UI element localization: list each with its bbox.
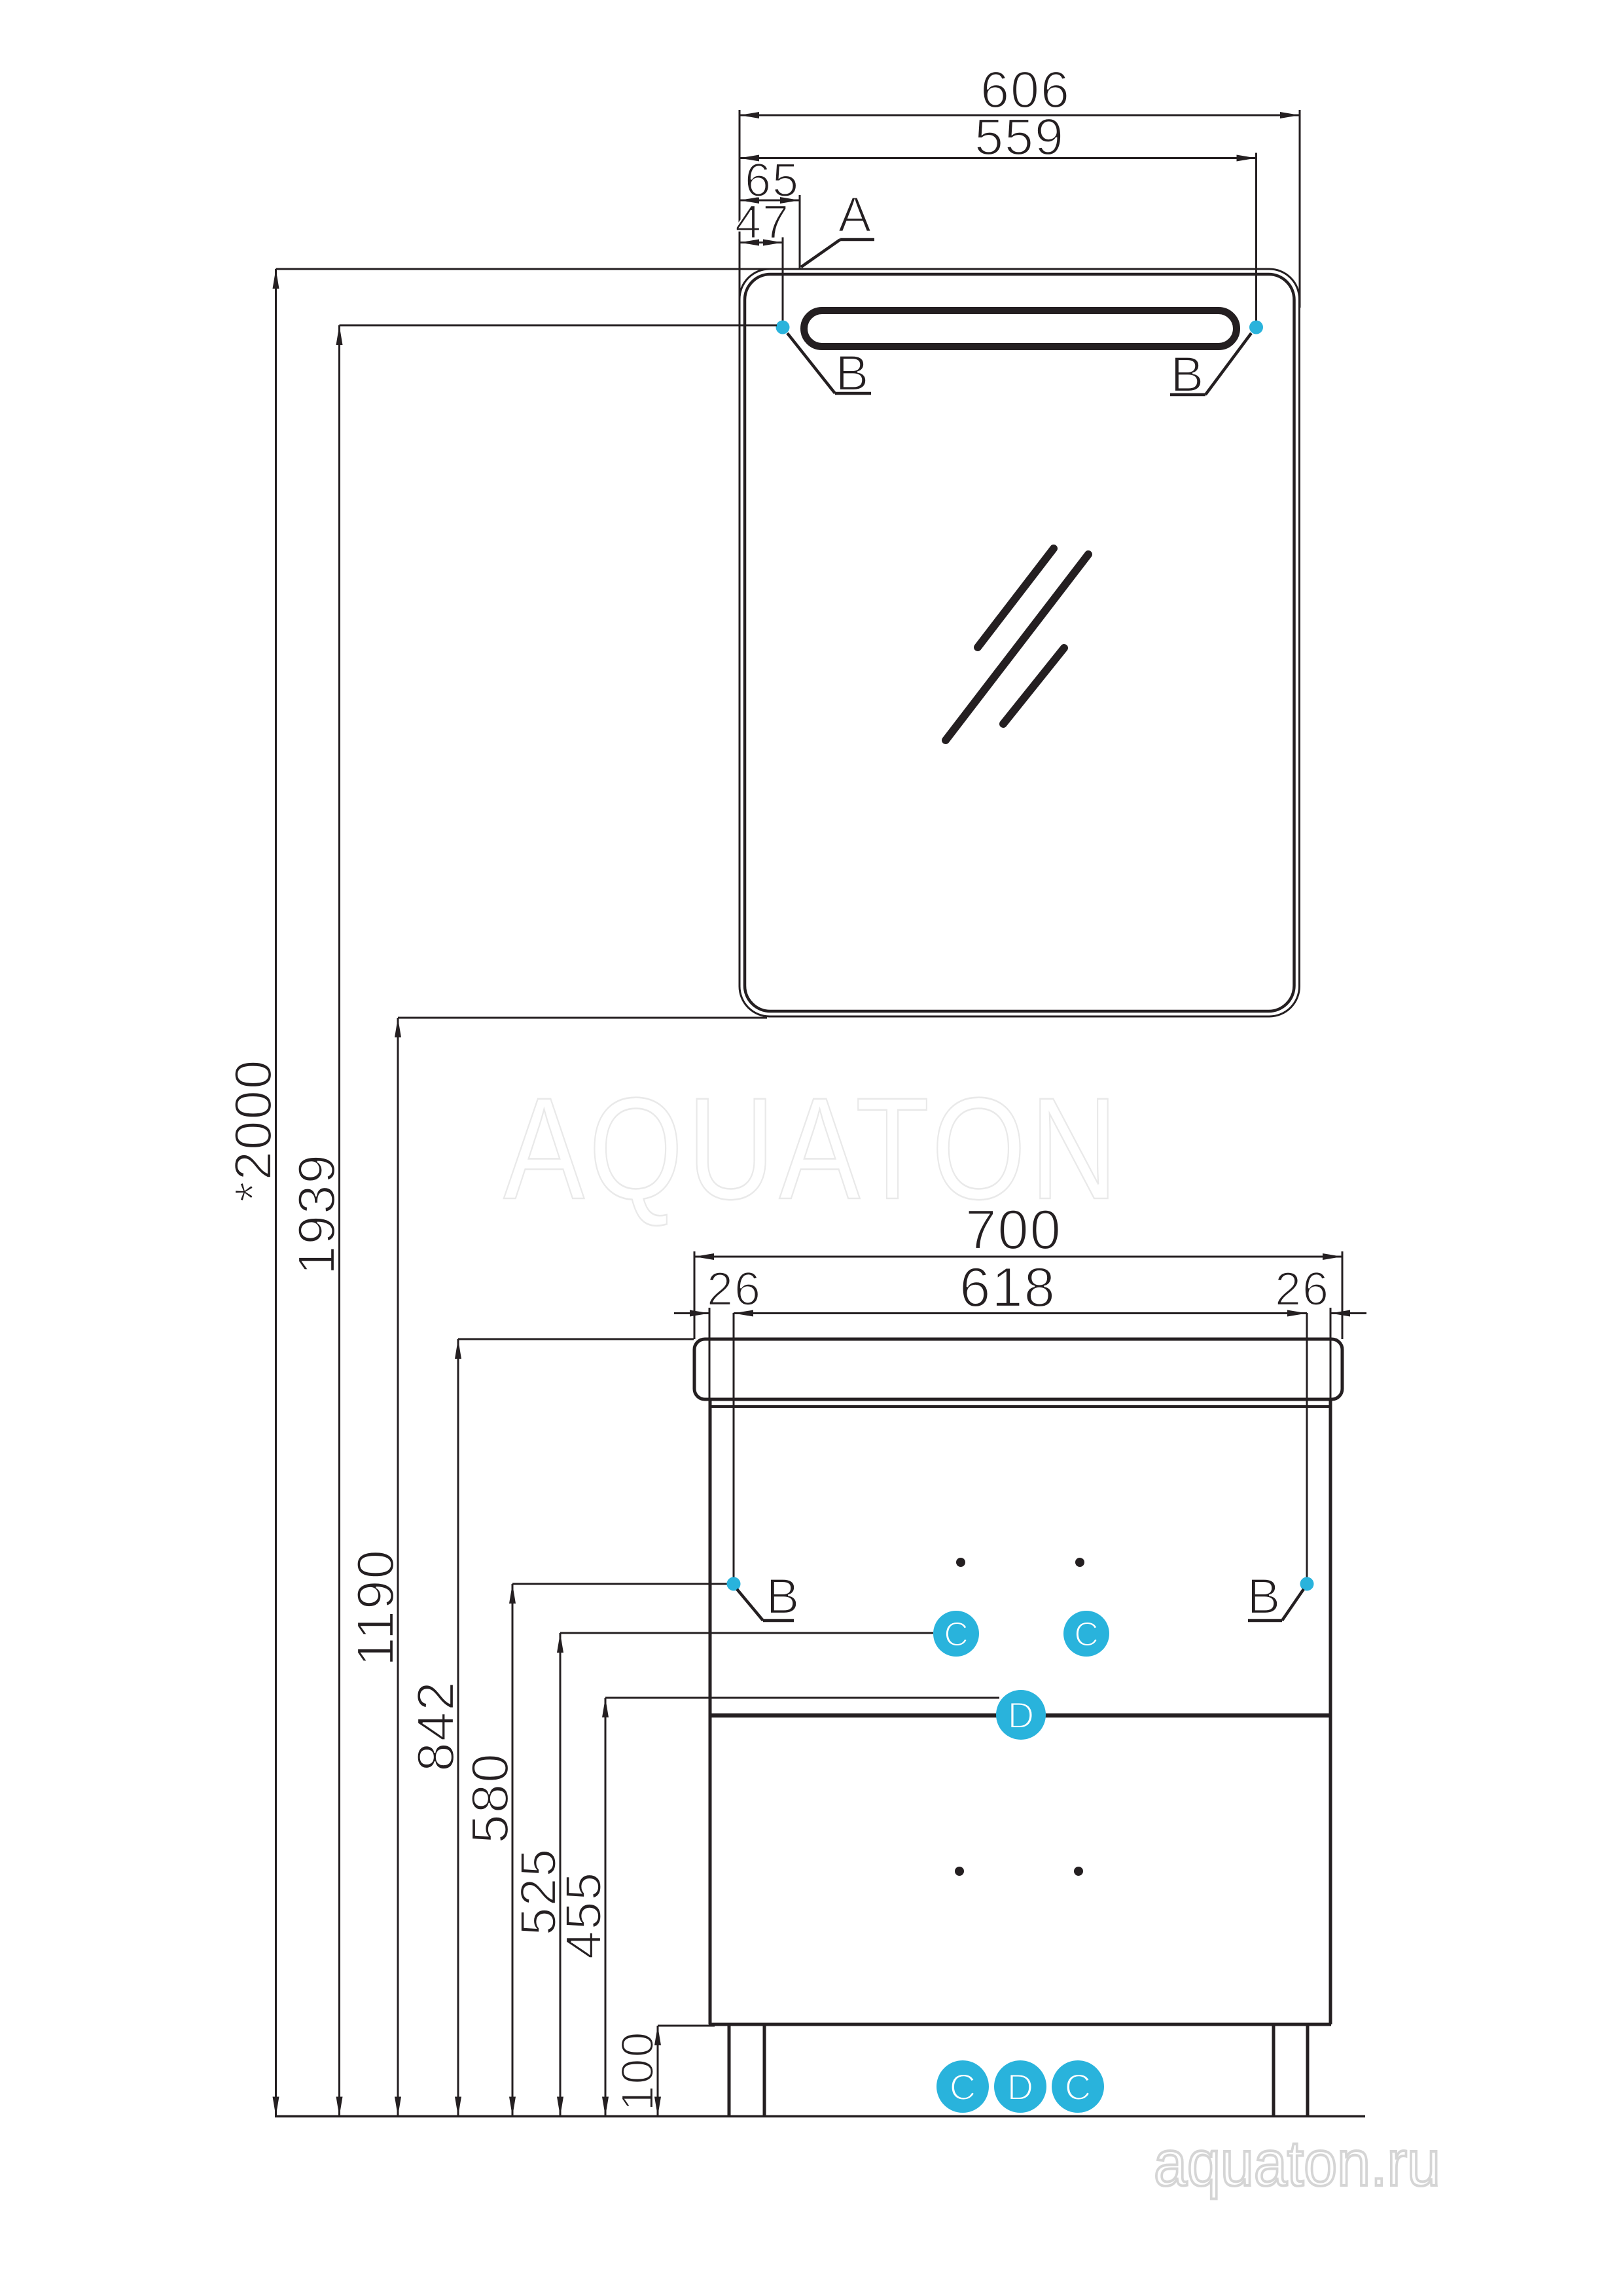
svg-text:C: C <box>950 2066 976 2108</box>
svg-text:700: 700 <box>965 1199 1062 1261</box>
svg-text:D: D <box>1007 2066 1033 2108</box>
svg-text:1939: 1939 <box>287 1153 346 1275</box>
svg-text:D: D <box>1008 1695 1034 1736</box>
svg-text:100: 100 <box>612 2031 663 2111</box>
svg-text:1190: 1190 <box>346 1549 404 1666</box>
svg-text:B: B <box>766 1569 801 1624</box>
svg-text:455: 455 <box>556 1871 612 1959</box>
svg-text:842: 842 <box>406 1680 465 1771</box>
svg-text:B: B <box>1247 1569 1282 1624</box>
svg-text:618: 618 <box>959 1257 1056 1319</box>
svg-text:47: 47 <box>735 196 790 249</box>
svg-text:*2000: *2000 <box>224 1058 282 1202</box>
svg-text:26: 26 <box>707 1263 762 1316</box>
svg-text:C: C <box>1065 2066 1091 2108</box>
svg-text:B: B <box>836 346 870 401</box>
svg-text:B: B <box>1171 347 1205 403</box>
svg-text:580: 580 <box>461 1752 519 1843</box>
svg-text:C: C <box>944 1615 969 1653</box>
svg-text:A: A <box>838 187 873 243</box>
svg-text:C: C <box>1074 1615 1099 1653</box>
svg-text:aquaton.ru: aquaton.ru <box>1154 2127 1440 2199</box>
svg-text:26: 26 <box>1275 1263 1330 1316</box>
svg-text:559: 559 <box>974 107 1065 166</box>
